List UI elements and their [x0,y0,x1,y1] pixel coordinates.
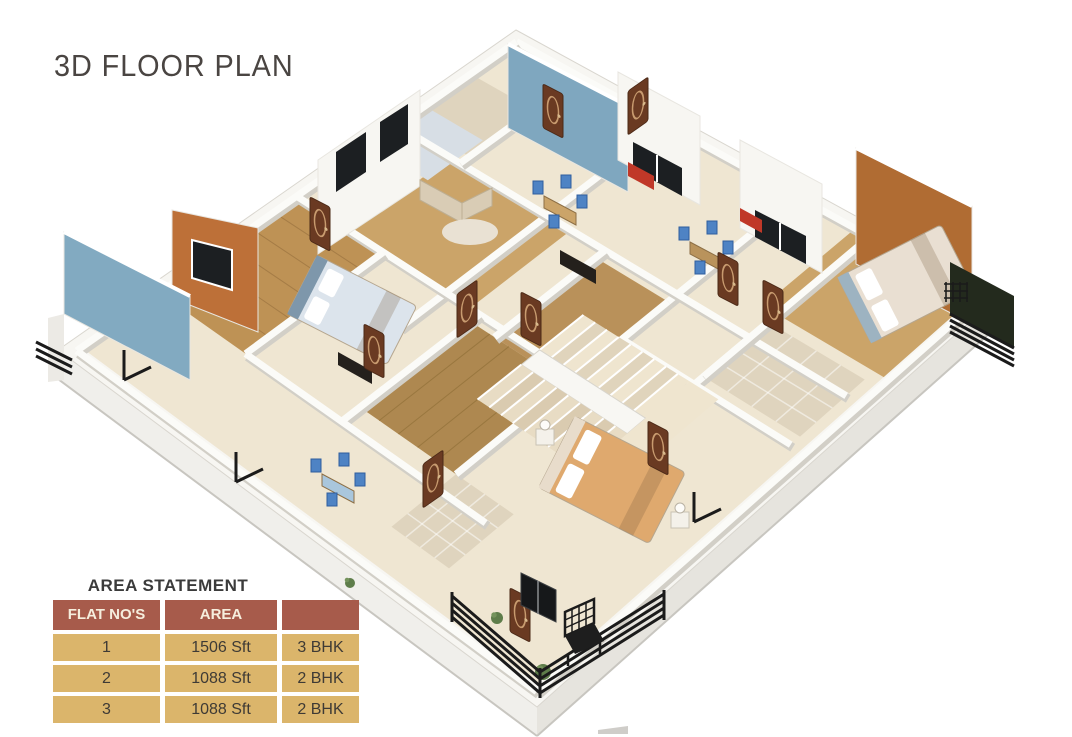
table-cell-area: 1088 Sft [165,665,277,692]
table-cell-area: 1506 Sft [165,634,277,661]
dining-a-chair [533,181,543,194]
dining-b-chair [339,453,349,466]
page-artifact [598,726,628,734]
dining-b-chair [355,473,365,486]
table-cell-type: 2 BHK [282,665,359,692]
lamp [540,420,550,430]
table-cell-flat-no: 2 [53,665,160,692]
bedside-table [536,429,554,445]
header-cell-area: AREA [165,600,277,630]
area-statement-title: AREA STATEMENT [53,576,283,596]
dining-a-chair [577,195,587,208]
dining-c-chair [695,261,705,274]
dining-a-chair [561,175,571,188]
dining-b-chair [327,493,337,506]
dining-b-chair [311,459,321,472]
area-statement-table: FLAT NO'S AREA 1 1506 Sft 3 BHK 2 1088 S… [53,600,359,723]
dining-c-chair [707,221,717,234]
table-cell-type: 2 BHK [282,696,359,723]
table-cell-flat-no: 1 [53,634,160,661]
header-cell-type [282,600,359,630]
table-cell-flat-no: 3 [53,696,160,723]
dining-c-chair [723,241,733,254]
area-statement: AREA STATEMENT FLAT NO'S AREA 1 1506 Sft… [53,576,359,723]
header-cell-flat-nos: FLAT NO'S [53,600,160,630]
bedside-table [671,512,689,528]
brochure-page: 3D FLOOR PLAN AREA STATEMENT FLAT NO'S A… [0,0,1072,737]
dining-c-chair [679,227,689,240]
lamp [675,503,685,513]
dining-a-chair [549,215,559,228]
table-cell-area: 1088 Sft [165,696,277,723]
rug [442,219,498,245]
plant-leaf [491,612,496,617]
table-cell-type: 3 BHK [282,634,359,661]
